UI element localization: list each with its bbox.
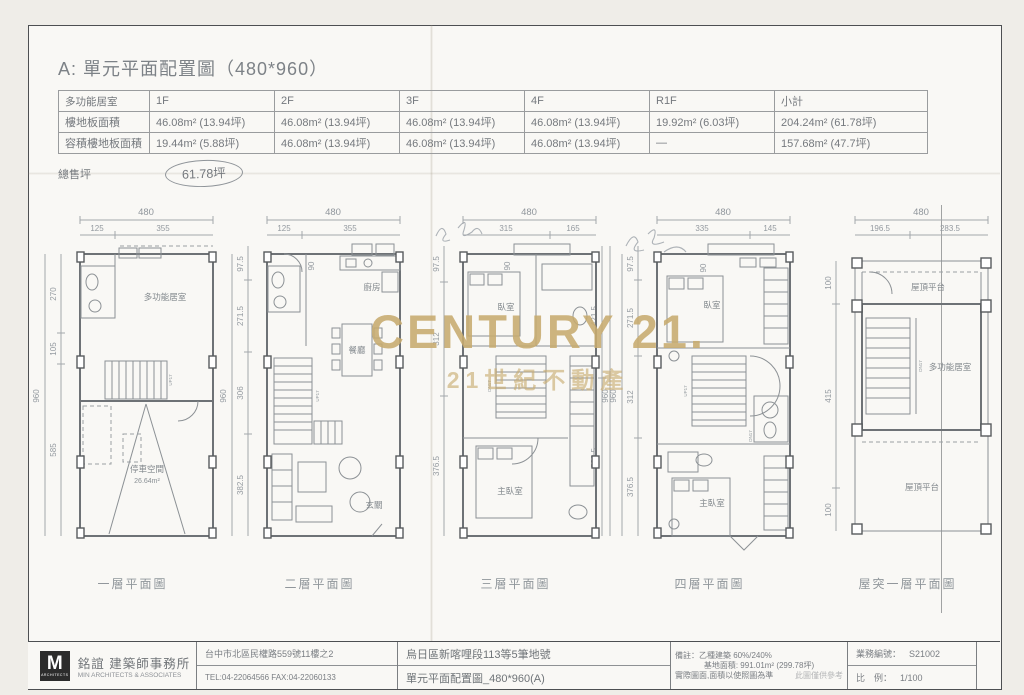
svg-text:DN17: DN17 bbox=[748, 430, 753, 442]
stairs: UP17 DN17 bbox=[683, 356, 753, 442]
col-subtotal: 小計 bbox=[775, 91, 928, 112]
col-3f: 3F bbox=[400, 91, 525, 112]
project-cell: 烏日區新喀哩段113等5筆地號 單元平面配置圖_480*960(A) bbox=[398, 642, 671, 689]
svg-text:UP17: UP17 bbox=[315, 390, 320, 402]
note-line-1: 備註：乙種建築 60%/240% bbox=[675, 651, 843, 661]
cell: 46.08m² (13.94坪) bbox=[400, 133, 525, 154]
cell: — bbox=[650, 133, 775, 154]
svg-text:145: 145 bbox=[763, 224, 777, 233]
total-ping-value-circled: 61.78坪 bbox=[165, 159, 244, 189]
dimensions-right: 421.5 538.5 960 bbox=[590, 246, 610, 536]
svg-text:97.5: 97.5 bbox=[236, 256, 245, 272]
svg-text:415: 415 bbox=[824, 389, 833, 403]
dimensions-top: 480 125 355 bbox=[80, 207, 213, 239]
svg-text:DN17: DN17 bbox=[918, 360, 923, 372]
svg-text:480: 480 bbox=[715, 207, 731, 218]
floor-plan-2f-drawing: 480 125 355 960 97.5 271.5 306 382.5 90 bbox=[222, 206, 417, 566]
svg-text:376.5: 376.5 bbox=[626, 476, 635, 497]
svg-text:312: 312 bbox=[626, 390, 635, 404]
floor-plan-roof: 480 196.5 283.5 100 415 100 bbox=[810, 206, 1005, 601]
floor-plan-4f: 480 335 145 960 97.5 271.5 312 376.5 90 bbox=[612, 206, 807, 601]
svg-text:97.5: 97.5 bbox=[432, 256, 441, 272]
row-label: 樓地板面積 bbox=[59, 112, 150, 133]
bedroom-furniture bbox=[667, 268, 788, 361]
far-area-row: 容積樓地板面積 19.44m² (5.88坪) 46.08m² (13.94坪)… bbox=[59, 133, 928, 154]
dimensions-left: 960 270 105 585 bbox=[32, 254, 65, 536]
floor-plan-2f: 480 125 355 960 97.5 271.5 306 382.5 90 bbox=[222, 206, 417, 601]
firm-cell: M ARCHITECTS 銘誼 建築師事務所 MIN ARCHITECTS & … bbox=[28, 642, 197, 689]
svg-text:90: 90 bbox=[699, 263, 708, 272]
title-block: M ARCHITECTS 銘誼 建築師事務所 MIN ARCHITECTS & … bbox=[28, 641, 1000, 689]
svg-text:97.5: 97.5 bbox=[626, 256, 635, 272]
col-2f: 2F bbox=[275, 91, 400, 112]
room-label-roof-terrace-top: 屋頂平台 bbox=[911, 282, 945, 292]
svg-text:382.5: 382.5 bbox=[236, 474, 245, 495]
bathroom-fixtures bbox=[81, 248, 161, 318]
svg-text:100: 100 bbox=[824, 503, 833, 517]
room-label-master-bedroom: 主臥室 bbox=[699, 498, 725, 508]
svg-text:480: 480 bbox=[521, 207, 537, 218]
room-label-parking: 停車空間 bbox=[130, 464, 164, 474]
stairs: DN17 bbox=[487, 356, 546, 418]
job-number-label: 業務編號： bbox=[856, 647, 901, 660]
room-label-parking-area: 26.64m² bbox=[134, 478, 160, 485]
job-scale-cell: 業務編號： S21002 比 例： 1/100 bbox=[848, 642, 977, 689]
table-header-row: 多功能居室 1F 2F 3F 4F R1F 小計 bbox=[59, 91, 928, 112]
master-bedroom-furniture bbox=[668, 452, 788, 536]
svg-text:355: 355 bbox=[343, 224, 357, 233]
svg-text:UP17: UP17 bbox=[168, 374, 173, 386]
floor-plan-roof-drawing: 480 196.5 283.5 100 415 100 bbox=[810, 206, 1005, 566]
job-number-row: 業務編號： S21002 bbox=[848, 642, 976, 665]
svg-text:960: 960 bbox=[609, 389, 618, 403]
bathroom bbox=[754, 396, 788, 442]
logo-caption: ARCHITECTS bbox=[41, 673, 68, 677]
room-label-master-bedroom: 主臥室 bbox=[497, 486, 523, 496]
dimensions-top: 480 315 165 bbox=[463, 207, 596, 239]
floor-plan-4f-drawing: 480 335 145 960 97.5 271.5 312 376.5 90 bbox=[612, 206, 807, 566]
cell: 19.44m² (5.88坪) bbox=[150, 133, 275, 154]
scale-value: 1/100 bbox=[900, 673, 923, 683]
cell: 46.08m² (13.94坪) bbox=[275, 112, 400, 133]
floor-plan-3f: 480 315 165 97.5 312 376.5 90 421.5 538.… bbox=[418, 206, 613, 601]
closet-shaft bbox=[569, 356, 594, 519]
col-4f: 4F bbox=[525, 91, 650, 112]
scale-label: 比 例： bbox=[856, 671, 892, 684]
svg-text:480: 480 bbox=[325, 207, 341, 218]
cell: 46.08m² (13.94坪) bbox=[400, 112, 525, 133]
scale-row: 比 例： 1/100 bbox=[848, 665, 976, 689]
svg-text:196.5: 196.5 bbox=[870, 224, 891, 233]
plan-caption-3f: 三層平面圖 bbox=[418, 575, 613, 592]
room-label-foyer: 玄關 bbox=[365, 500, 382, 510]
total-ping-label: 總售坪 bbox=[58, 166, 128, 182]
floor-plan-1f-drawing: 480 125 355 960 270 105 585 bbox=[35, 206, 230, 566]
plan-caption-4f: 四層平面圖 bbox=[612, 575, 807, 592]
svg-text:421.5: 421.5 bbox=[590, 305, 599, 326]
floor-plan-3f-drawing: 480 315 165 97.5 312 376.5 90 421.5 538.… bbox=[418, 206, 613, 566]
room-label-kitchen: 廚房 bbox=[363, 282, 380, 292]
col-1f: 1F bbox=[150, 91, 275, 112]
total-ping-row: 總售坪 61.78坪 bbox=[58, 160, 243, 187]
cell: 46.08m² (13.94坪) bbox=[150, 112, 275, 133]
address-cell: 台中市北區民權路559號11樓之2 TEL:04-22064566 FAX:04… bbox=[197, 642, 398, 689]
svg-text:UP17: UP17 bbox=[683, 385, 688, 397]
svg-text:270: 270 bbox=[49, 287, 58, 301]
note-line-3: 實際圖面,面積以使照圖為準 此圖僅供參考 bbox=[675, 671, 843, 681]
floor-area-row: 樓地板面積 46.08m² (13.94坪) 46.08m² (13.94坪) … bbox=[59, 112, 928, 133]
firm-address: 台中市北區民權路559號11樓之2 bbox=[197, 642, 397, 665]
drawing-title: 單元平面配置圖_480*960(A) bbox=[398, 665, 670, 689]
firm-name-en: MIN ARCHITECTS & ASSOCIATES bbox=[78, 672, 190, 679]
scanned-floor-plan-sheet: { "page": { "title": "A: 單元平面配置圖（480*960… bbox=[0, 0, 1024, 695]
dimensions-top: 480 125 355 bbox=[267, 207, 400, 239]
svg-text:335: 335 bbox=[695, 224, 709, 233]
room-label-multipurpose: 多功能居室 bbox=[144, 292, 187, 302]
cell: 46.08m² (13.94坪) bbox=[525, 133, 650, 154]
svg-text:100: 100 bbox=[824, 276, 833, 290]
stairs: UP17 bbox=[274, 358, 342, 444]
page-title: A: 單元平面配置圖（480*960） bbox=[58, 55, 328, 81]
svg-text:283.5: 283.5 bbox=[940, 224, 961, 233]
plan-caption-roof: 屋突一層平面圖 bbox=[810, 575, 1005, 592]
svg-text:315: 315 bbox=[499, 224, 513, 233]
note-line-2: 基地面積: 991.01m² (299.78坪) bbox=[675, 661, 843, 671]
row-label: 容積樓地板面積 bbox=[59, 133, 150, 154]
svg-text:585: 585 bbox=[49, 443, 58, 457]
empty-cell bbox=[977, 642, 1000, 689]
svg-text:125: 125 bbox=[277, 224, 291, 233]
handwritten-mark bbox=[436, 222, 482, 241]
corner-cell: 多功能居室 bbox=[59, 91, 150, 112]
col-r1f: R1F bbox=[650, 91, 775, 112]
firm-names: 銘誼 建築師事務所 MIN ARCHITECTS & ASSOCIATES bbox=[78, 653, 190, 679]
dimensions-top: 480 196.5 283.5 bbox=[855, 207, 988, 239]
cell: 46.08m² (13.94坪) bbox=[525, 112, 650, 133]
svg-text:125: 125 bbox=[90, 224, 104, 233]
cell: 46.08m² (13.94坪) bbox=[275, 133, 400, 154]
cell: 19.92m² (6.03坪) bbox=[650, 112, 775, 133]
svg-text:90: 90 bbox=[307, 261, 316, 270]
notes-cell: 備註：乙種建築 60%/240% 基地面積: 991.01m² (299.78坪… bbox=[671, 642, 848, 689]
svg-text:312: 312 bbox=[432, 332, 441, 346]
job-number-value: S21002 bbox=[909, 649, 940, 659]
firm-telfax: TEL:04-22064566 FAX:04-22060133 bbox=[197, 665, 397, 689]
svg-text:306: 306 bbox=[236, 386, 245, 400]
room-label-multipurpose: 多功能居室 bbox=[929, 362, 972, 372]
stairs: DN17 bbox=[866, 318, 923, 414]
floor-plan-1f: 480 125 355 960 270 105 585 bbox=[35, 206, 230, 601]
stairs: UP17 bbox=[105, 361, 173, 399]
columns bbox=[852, 258, 991, 534]
note-accuracy: 實際圖面,面積以使照圖為準 bbox=[675, 671, 773, 681]
svg-text:355: 355 bbox=[156, 224, 170, 233]
svg-text:90: 90 bbox=[503, 261, 512, 270]
svg-text:271.5: 271.5 bbox=[236, 305, 245, 326]
room-label-bedroom: 臥室 bbox=[497, 302, 515, 312]
room-label-dining: 餐廳 bbox=[348, 345, 366, 355]
plan-caption-1f: 一層平面圖 bbox=[35, 575, 230, 592]
svg-text:960: 960 bbox=[219, 389, 228, 403]
columns bbox=[460, 252, 599, 538]
dimensions-left: 100 415 100 bbox=[824, 261, 840, 531]
svg-text:480: 480 bbox=[138, 207, 154, 218]
svg-text:DN17: DN17 bbox=[487, 380, 492, 392]
logo-letter: M bbox=[47, 654, 63, 673]
room-label-roof-terrace-bottom: 屋頂平台 bbox=[905, 482, 939, 492]
site-lot-number: 烏日區新喀哩段113等5筆地號 bbox=[398, 642, 670, 665]
svg-text:165: 165 bbox=[566, 224, 580, 233]
cell: 157.68m² (47.7坪) bbox=[775, 133, 928, 154]
firm-name-cn: 銘誼 建築師事務所 bbox=[78, 653, 190, 672]
room-label-bedroom: 臥室 bbox=[703, 300, 721, 310]
note-reference-only: 此圖僅供參考 bbox=[795, 671, 843, 681]
plan-caption-2f: 二層平面圖 bbox=[222, 575, 417, 592]
bedroom-furniture bbox=[468, 264, 592, 336]
living-furniture bbox=[272, 454, 382, 536]
min-architects-logo: M ARCHITECTS bbox=[40, 651, 70, 681]
svg-text:480: 480 bbox=[913, 207, 929, 218]
area-summary-table: 多功能居室 1F 2F 3F 4F R1F 小計 樓地板面積 46.08m² (… bbox=[58, 90, 928, 154]
cell: 204.24m² (61.78坪) bbox=[775, 112, 928, 133]
handwritten-mark bbox=[626, 230, 686, 252]
svg-text:960: 960 bbox=[32, 389, 41, 403]
svg-text:376.5: 376.5 bbox=[432, 455, 441, 476]
dimensions-top: 480 335 145 bbox=[657, 207, 790, 239]
svg-text:105: 105 bbox=[49, 342, 58, 356]
svg-text:271.5: 271.5 bbox=[626, 307, 635, 328]
master-bedroom-furniture bbox=[476, 446, 532, 518]
columns bbox=[264, 252, 403, 538]
